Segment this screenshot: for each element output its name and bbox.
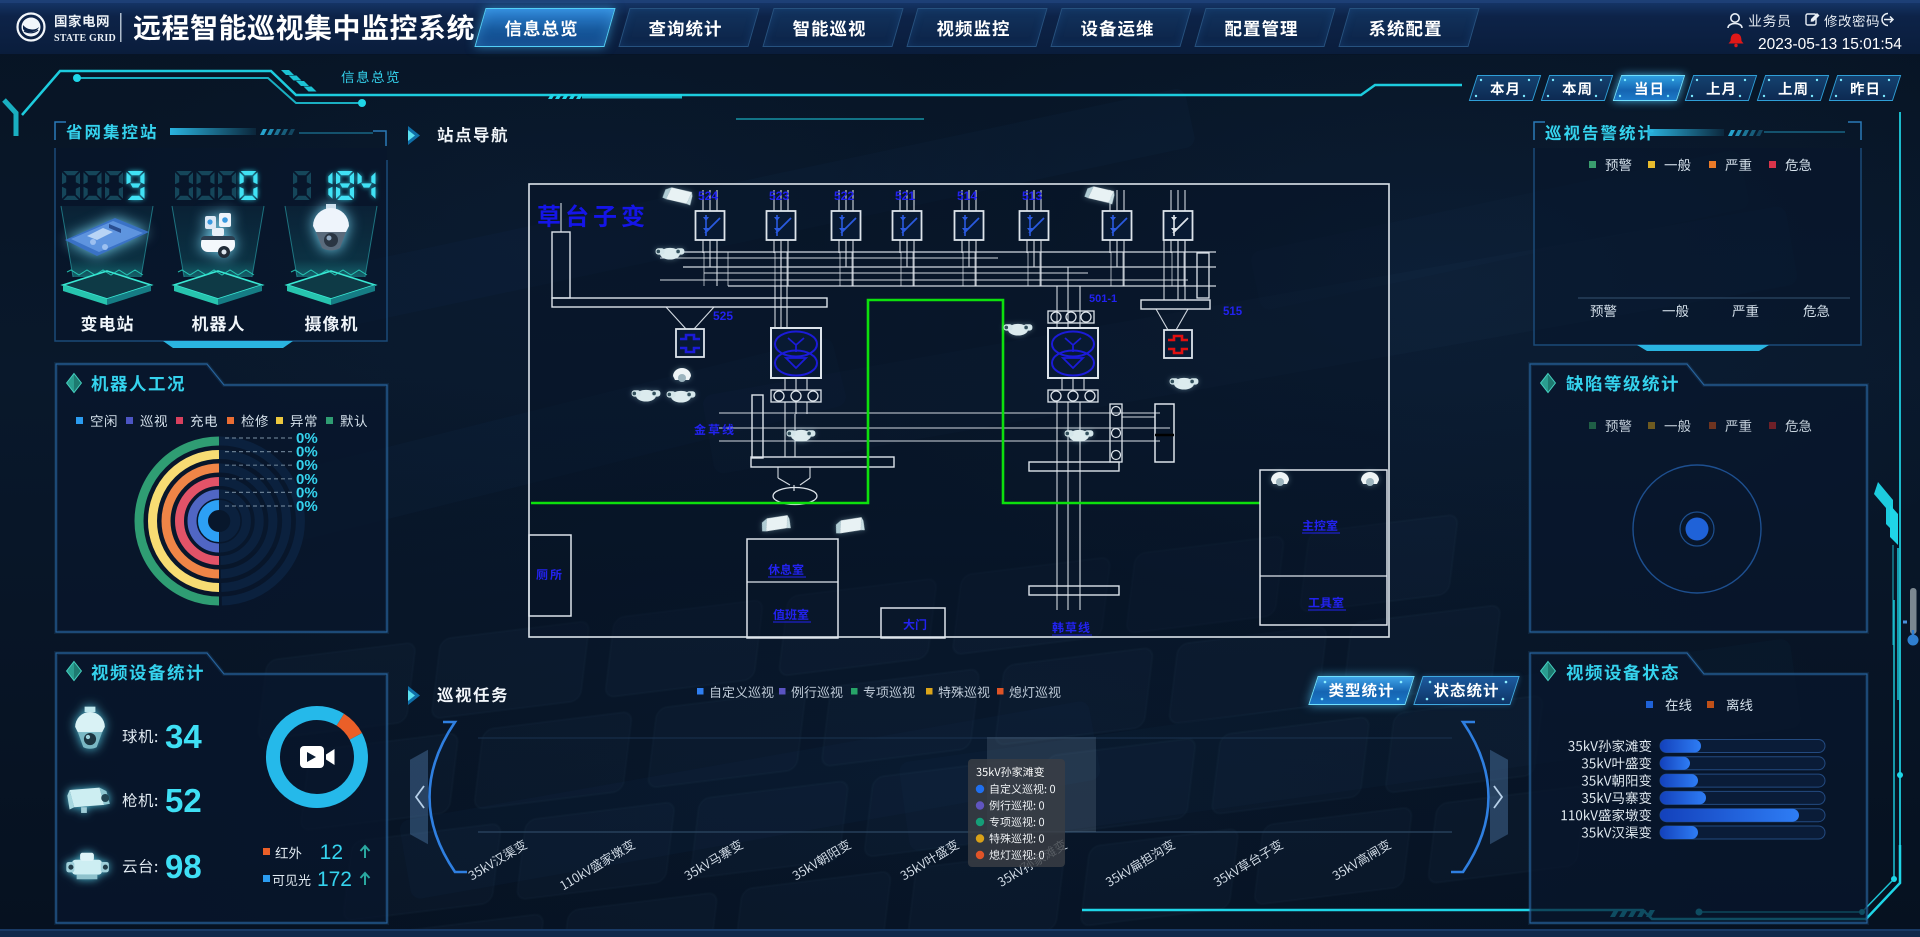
svg-text:525: 525 [713, 309, 733, 323]
svg-text:2023-05-13 15:01:54: 2023-05-13 15:01:54 [1758, 36, 1902, 53]
svg-text:514: 514 [957, 189, 977, 203]
svg-text:522: 522 [834, 189, 854, 203]
svg-text:513: 513 [1022, 189, 1042, 203]
svg-text:521: 521 [895, 189, 915, 203]
svg-text:523: 523 [769, 189, 789, 203]
svg-text:STATE GRID: STATE GRID [54, 33, 116, 44]
svg-text:52: 52 [165, 782, 202, 819]
svg-text:34: 34 [165, 718, 202, 755]
svg-text:0%: 0% [296, 498, 318, 515]
svg-text:12: 12 [320, 841, 343, 864]
svg-text:172: 172 [317, 868, 352, 891]
svg-text:98: 98 [165, 848, 202, 885]
svg-text:501-1: 501-1 [1089, 293, 1117, 305]
svg-text:515: 515 [1223, 306, 1243, 318]
svg-text:524: 524 [698, 189, 718, 203]
